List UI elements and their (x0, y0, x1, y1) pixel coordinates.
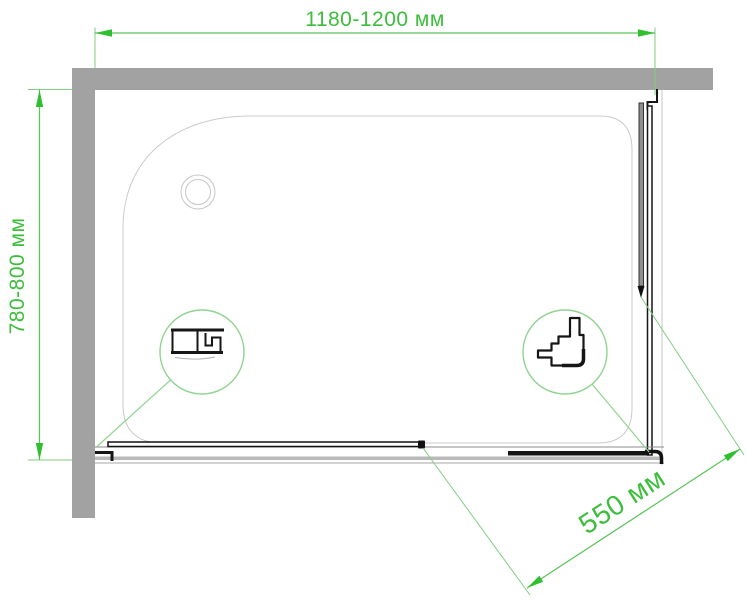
left-wall (72, 68, 95, 518)
leader-line-left (97, 380, 171, 447)
detail-callout-wall-profile (97, 310, 244, 447)
entry-arrow-bottom-left (527, 576, 543, 588)
right-fixed-glass-panel (648, 106, 653, 455)
drain-inner-circle (186, 180, 211, 205)
shower-enclosure-technical-drawing: 1180-1200 мм 780-800 мм 550 мм (0, 0, 746, 600)
leader-line-right (592, 384, 649, 452)
entry-arrow-top-right (724, 449, 740, 461)
entry-extension-line-left (423, 448, 530, 595)
front-bottom-rail (95, 457, 662, 461)
drain-outer-circle (181, 175, 215, 209)
front-door-assembly (95, 441, 664, 465)
top-wall (72, 68, 713, 90)
right-sliding-door-edge-cap (638, 286, 645, 298)
depth-arrow-bottom (36, 443, 43, 460)
right-sliding-glass-panel (639, 103, 644, 286)
front-door-handle-cap (418, 441, 425, 449)
walls (72, 68, 713, 518)
entry-dimension-label: 550 мм (573, 462, 670, 540)
front-outer-sliding-door (508, 451, 649, 456)
depth-dimension-label: 780-800 мм (6, 218, 29, 335)
right-glass-assembly (638, 89, 663, 465)
dimension-depth: 780-800 мм (6, 90, 72, 461)
depth-arrow-top (36, 90, 43, 107)
entry-dimension-line (527, 449, 740, 588)
detail-callout-corner-profile (523, 310, 649, 452)
width-arrow-left (95, 29, 112, 37)
width-dimension-label: 1180-1200 мм (305, 8, 445, 31)
entry-extension-line-right (641, 297, 744, 455)
front-inner-sliding-door (108, 442, 419, 447)
width-arrow-right (638, 29, 655, 37)
